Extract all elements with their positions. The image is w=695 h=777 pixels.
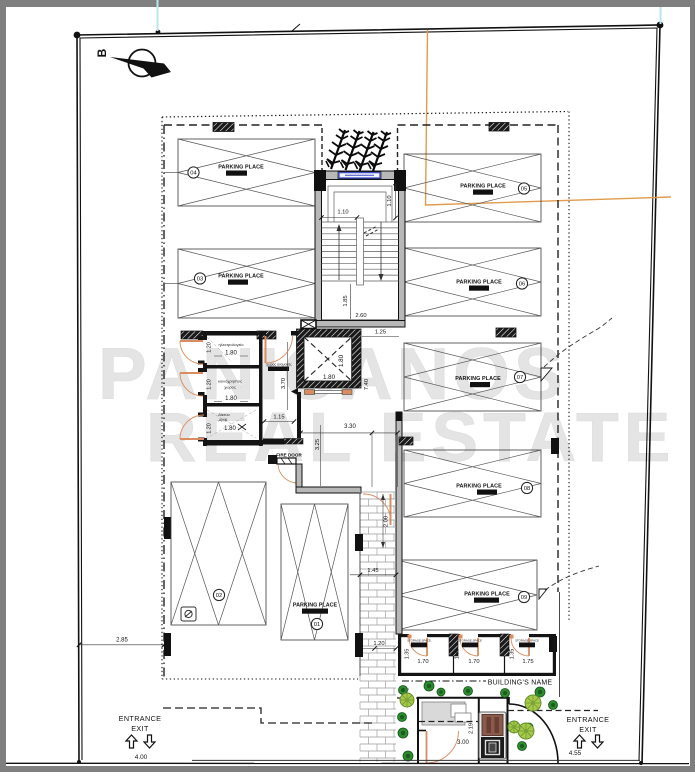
svg-text:PARKING PLACE: PARKING PLACE — [455, 376, 501, 382]
svg-text:1.20: 1.20 — [207, 342, 213, 353]
svg-text:EXIT: EXIT — [131, 724, 149, 733]
svg-text:PARKING PLACE: PARKING PLACE — [293, 603, 338, 609]
svg-text:1.45: 1.45 — [367, 568, 378, 574]
svg-text:08: 08 — [524, 486, 530, 492]
svg-text:1.80: 1.80 — [225, 396, 237, 402]
svg-text:06: 06 — [519, 282, 525, 288]
svg-text:4.55: 4.55 — [569, 750, 582, 757]
svg-text:FIRE DOOR: FIRE DOOR — [276, 453, 302, 458]
svg-text:1.15: 1.15 — [273, 415, 284, 421]
svg-text:3.70: 3.70 — [281, 378, 287, 389]
svg-text:PARKING PLACE: PARKING PLACE — [460, 184, 506, 190]
svg-text:1.35: 1.35 — [405, 649, 411, 660]
svg-text:1.70: 1.70 — [468, 659, 479, 665]
svg-text:1.20: 1.20 — [373, 641, 384, 647]
svg-text:STORAGE SPACE: STORAGE SPACE — [515, 639, 539, 643]
svg-text:BUILDING’S NAME: BUILDING’S NAME — [488, 680, 553, 687]
svg-text:χώρος: χώρος — [224, 385, 236, 390]
svg-text:1.75: 1.75 — [522, 659, 533, 665]
svg-text:03: 03 — [197, 277, 203, 283]
svg-text:01: 01 — [314, 622, 320, 628]
svg-text:PARKING PLACE: PARKING PLACE — [456, 280, 502, 286]
svg-text:κοινόχρηστος: κοινόχρηστος — [218, 379, 242, 384]
svg-text:1.10: 1.10 — [337, 210, 348, 216]
svg-text:PARKING PLACE: PARKING PLACE — [456, 484, 502, 490]
svg-text:02: 02 — [216, 593, 222, 599]
svg-text:1.35: 1.35 — [510, 649, 516, 660]
svg-text:4.00: 4.00 — [135, 754, 148, 761]
svg-text:STORAGE SPACE: STORAGE SPACE — [407, 639, 431, 643]
svg-text:1.20: 1.20 — [207, 379, 213, 390]
svg-text:09: 09 — [521, 595, 527, 601]
svg-text:PARKING PLACE: PARKING PLACE — [218, 165, 264, 171]
svg-text:Δίκτυο: Δίκτυο — [218, 412, 230, 417]
svg-text:3.30: 3.30 — [344, 424, 356, 430]
svg-text:ENTRANCE: ENTRANCE — [567, 715, 610, 724]
svg-text:1.80: 1.80 — [323, 374, 336, 381]
svg-text:1.80: 1.80 — [225, 351, 237, 357]
svg-text:B: B — [95, 48, 109, 57]
svg-text:3.00: 3.00 — [457, 740, 469, 746]
svg-text:07: 07 — [517, 375, 523, 381]
svg-text:2.85: 2.85 — [116, 638, 128, 644]
svg-text:1.70: 1.70 — [417, 659, 428, 665]
svg-text:STORAGE SPACE: STORAGE SPACE — [458, 639, 482, 643]
svg-text:1.25: 1.25 — [375, 330, 386, 336]
svg-text:1.10: 1.10 — [387, 195, 393, 206]
svg-text:1.85: 1.85 — [343, 295, 349, 306]
svg-text:EXIT: EXIT — [579, 725, 597, 734]
svg-text:2.00: 2.00 — [384, 516, 390, 527]
svg-text:05: 05 — [521, 187, 527, 193]
svg-text:1.20: 1.20 — [207, 423, 213, 434]
svg-text:χώρος αναμονής: χώρος αναμονής — [266, 363, 292, 367]
svg-text:1.35: 1.35 — [455, 649, 461, 660]
svg-text:PARKING PLACE: PARKING PLACE — [464, 592, 510, 598]
svg-text:1.80: 1.80 — [338, 354, 345, 367]
svg-text:2.60: 2.60 — [355, 313, 366, 319]
svg-text:04: 04 — [190, 171, 197, 177]
svg-text:PARKING PLACE: PARKING PLACE — [218, 274, 264, 280]
svg-text:ΑΗΚ: ΑΗΚ — [218, 418, 227, 423]
svg-text:1.80: 1.80 — [224, 426, 236, 432]
svg-text:ηλεκτρολογείο: ηλεκτρολογείο — [218, 342, 244, 347]
svg-text:ENTRANCE: ENTRANCE — [119, 714, 162, 723]
svg-text:3.25: 3.25 — [315, 439, 321, 450]
svg-text:2.19: 2.19 — [469, 723, 475, 734]
svg-text:7.40: 7.40 — [364, 379, 370, 390]
